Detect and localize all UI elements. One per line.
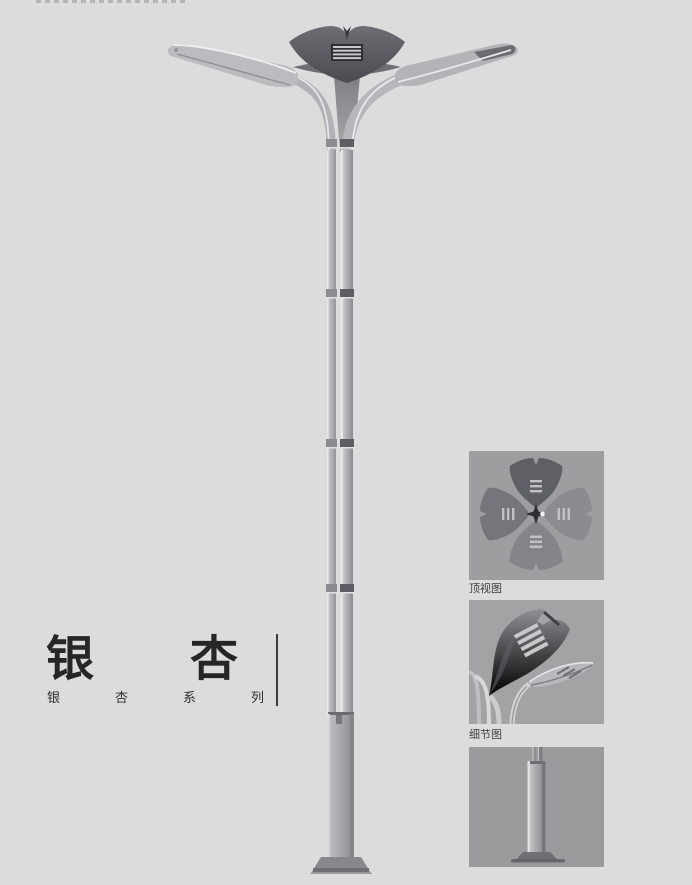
thumbnail-top-view	[469, 451, 604, 580]
lamp-head-right	[395, 44, 518, 87]
base-view-foot	[511, 852, 565, 863]
top-view-center-hub	[526, 504, 546, 524]
lamp-arm-left	[288, 77, 332, 158]
thumbnail-top-view-label: 顶视图	[469, 582, 604, 596]
top-view-drawing	[469, 451, 604, 580]
title-divider-line	[276, 634, 278, 706]
pole-tube-right	[341, 150, 353, 716]
thumbnail-detail-view	[469, 600, 604, 724]
base-view-column	[528, 761, 546, 855]
page-title: 银杏	[46, 632, 276, 688]
pole-foot	[310, 857, 372, 874]
series-subtitle: 银杏系列	[47, 690, 277, 706]
lamp-louver	[331, 44, 363, 61]
detail-view-drawing	[469, 600, 604, 724]
thumbnail-base-view	[469, 747, 604, 867]
pole-tube-left-highlight	[327, 150, 329, 716]
pole-base-column	[328, 712, 354, 860]
thumbnail-detail-view-label: 细节图	[469, 728, 604, 742]
pole-tube-right-highlight	[341, 150, 343, 716]
base-view-drawing	[469, 747, 604, 867]
lamp-head-left	[168, 44, 298, 87]
